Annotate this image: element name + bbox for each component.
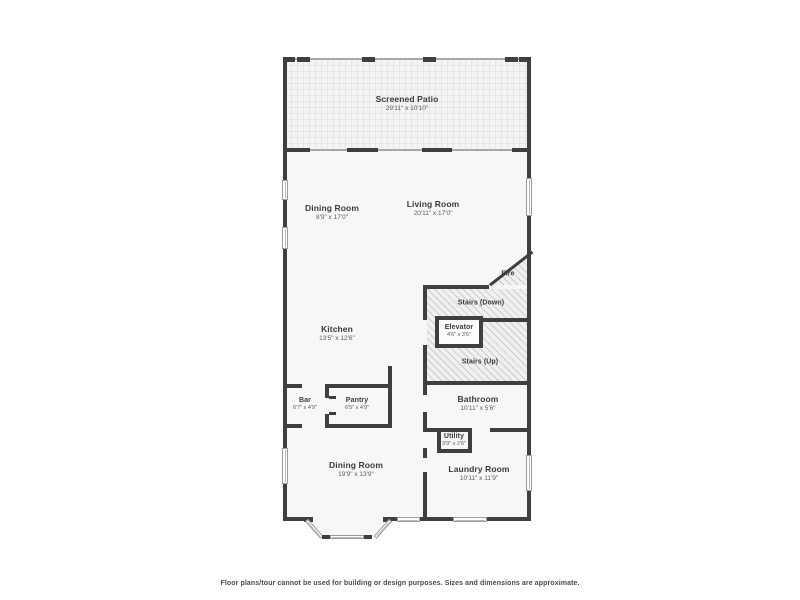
wall-segment bbox=[527, 57, 531, 152]
wall-segment bbox=[422, 148, 452, 152]
wall-segment bbox=[362, 57, 375, 62]
room-label-dining-room-bottom: Dining Room 19'9" x 13'9" bbox=[329, 460, 383, 478]
wall-segment bbox=[388, 366, 392, 428]
room-label-pantry: Pantry 6'5" x 4'9" bbox=[345, 397, 369, 411]
wall-segment bbox=[487, 517, 531, 521]
sliding-door bbox=[310, 149, 347, 151]
bay-window-corner bbox=[322, 535, 330, 539]
room-name: Bar bbox=[299, 397, 311, 404]
wall-segment bbox=[283, 57, 295, 62]
wall-segment bbox=[437, 449, 472, 453]
wall-segment bbox=[519, 57, 531, 62]
room-name: Screened Patio bbox=[376, 94, 439, 104]
window bbox=[453, 517, 487, 522]
room-dims: 20'11" x 17'0" bbox=[414, 210, 453, 217]
room-name: Living Room bbox=[407, 199, 460, 209]
room-dims: 10'11" x 11'9" bbox=[460, 475, 498, 482]
wall-segment bbox=[325, 414, 329, 428]
room-name: Stairs (Down) bbox=[458, 300, 504, 307]
sliding-door bbox=[452, 149, 512, 151]
window bbox=[282, 227, 288, 249]
window bbox=[526, 178, 532, 216]
wall-segment bbox=[347, 148, 378, 152]
room-label-stairs-down: Stairs (Down) bbox=[458, 300, 504, 307]
room-label-utility: Utility 3'9" x 2'6" bbox=[442, 433, 466, 447]
wall-segment bbox=[283, 384, 302, 388]
room-dims: 8'9" x 17'0" bbox=[316, 214, 348, 221]
wall-segment bbox=[283, 148, 310, 152]
wall-segment bbox=[325, 424, 392, 428]
wall-segment bbox=[479, 318, 531, 322]
room-dims: 13'5" x 12'6" bbox=[319, 335, 355, 342]
room-label-dining-room-top: Dining Room 8'9" x 17'0" bbox=[305, 203, 359, 221]
room-dims: 6'5" x 4'9" bbox=[345, 405, 369, 411]
floor-plan-canvas: Screened Patio 29'11" x 10'10" Dining Ro… bbox=[0, 0, 800, 600]
room-dims: 4'6" x 3'6" bbox=[447, 332, 471, 338]
room-name: Laundry Room bbox=[448, 464, 509, 474]
room-dims: 29'11" x 10'10" bbox=[386, 105, 428, 112]
room-name: Stairs (Up) bbox=[462, 359, 499, 366]
room-name: Utility bbox=[444, 433, 464, 440]
window bbox=[282, 448, 288, 484]
wall-segment bbox=[297, 57, 310, 62]
wall-segment bbox=[423, 472, 427, 519]
room-label-bar: Bar 6'7" x 4'9" bbox=[293, 397, 317, 411]
room-label-fire: Fire bbox=[501, 271, 514, 278]
room-label-kitchen: Kitchen 13'5" x 12'6" bbox=[319, 324, 355, 342]
door-jamb bbox=[329, 412, 336, 415]
wall-segment bbox=[423, 285, 489, 289]
room-name: Fire bbox=[501, 271, 514, 278]
room-label-elevator: Elevator 4'6" x 3'6" bbox=[445, 324, 473, 338]
room-name: Elevator bbox=[445, 324, 473, 331]
wall-segment bbox=[423, 285, 427, 320]
window bbox=[397, 517, 420, 522]
door-jamb bbox=[329, 396, 336, 399]
wall-segment bbox=[283, 57, 287, 152]
room-label-stairs-up: Stairs (Up) bbox=[462, 359, 499, 366]
room-name: Dining Room bbox=[329, 460, 383, 470]
wall-segment bbox=[423, 57, 436, 62]
bay-window bbox=[330, 535, 364, 539]
wall-segment bbox=[423, 381, 531, 385]
wall-segment bbox=[490, 428, 531, 432]
room-dims: 3'9" x 2'6" bbox=[442, 441, 466, 447]
room-label-living-room: Living Room 20'11" x 17'0" bbox=[407, 199, 460, 217]
room-label-bathroom: Bathroom 10'11" x 5'6" bbox=[458, 394, 499, 412]
room-name: Dining Room bbox=[305, 203, 359, 213]
room-dims: 19'9" x 13'9" bbox=[338, 471, 374, 478]
room-name: Pantry bbox=[346, 397, 368, 404]
wall-segment bbox=[423, 428, 472, 432]
wall-segment bbox=[283, 424, 302, 428]
sliding-door bbox=[378, 149, 422, 151]
room-label-laundry-room: Laundry Room 10'11" x 11'9" bbox=[448, 464, 509, 482]
wall-segment bbox=[423, 448, 427, 458]
wall-segment bbox=[505, 57, 518, 62]
room-dims: 10'11" x 5'6" bbox=[460, 405, 495, 412]
bay-window-corner bbox=[364, 535, 372, 539]
room-label-screened-patio: Screened Patio 29'11" x 10'10" bbox=[376, 94, 439, 112]
room-name: Bathroom bbox=[458, 394, 499, 404]
window bbox=[526, 455, 532, 491]
window bbox=[282, 180, 288, 200]
wall-segment bbox=[423, 345, 427, 395]
room-name: Kitchen bbox=[321, 324, 353, 334]
room-dims: 6'7" x 4'9" bbox=[293, 405, 317, 411]
wall-segment bbox=[325, 384, 392, 388]
disclaimer-text: Floor plans/tour cannot be used for buil… bbox=[0, 580, 800, 587]
screen-opening bbox=[287, 58, 527, 60]
